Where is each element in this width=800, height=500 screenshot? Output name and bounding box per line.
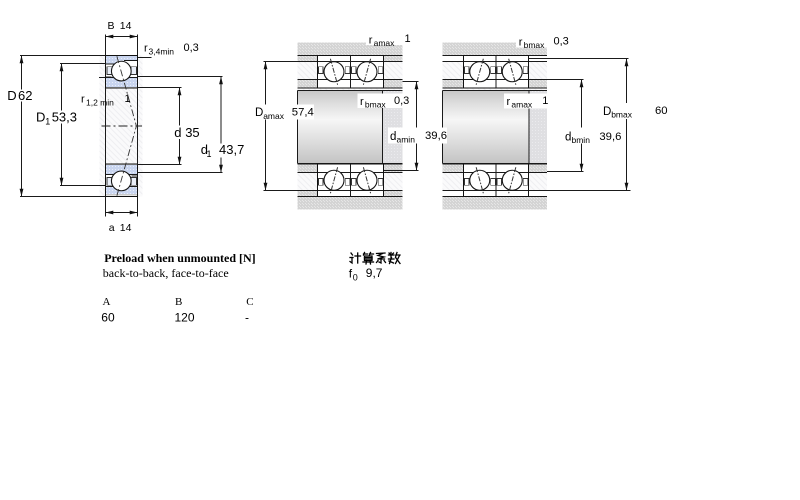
svg-text:r: r	[519, 36, 523, 48]
svg-text:bmin: bmin	[572, 135, 591, 145]
svg-text:amax: amax	[374, 38, 396, 48]
svg-text:1: 1	[207, 149, 212, 159]
svg-text:62: 62	[18, 88, 32, 103]
svg-text:d: d	[174, 125, 181, 140]
svg-text:Preload when unmounted [N]: Preload when unmounted [N]	[104, 251, 255, 265]
svg-text:r: r	[81, 94, 85, 106]
svg-text:1: 1	[45, 116, 50, 126]
svg-text:39,6: 39,6	[599, 131, 621, 143]
svg-text:60: 60	[655, 105, 668, 117]
svg-text:3,4min: 3,4min	[149, 47, 175, 57]
svg-text:amin: amin	[397, 135, 416, 145]
svg-text:35: 35	[185, 125, 199, 140]
svg-text:B: B	[108, 20, 115, 32]
svg-text:amax: amax	[263, 111, 285, 121]
svg-text:1: 1	[125, 93, 131, 105]
svg-text:C: C	[246, 296, 253, 308]
svg-text:back-to-back, face-to-face: back-to-back, face-to-face	[103, 266, 229, 280]
svg-text:D: D	[7, 88, 16, 103]
svg-text:a: a	[109, 222, 115, 234]
svg-text:1: 1	[542, 95, 548, 107]
svg-text:d: d	[565, 131, 571, 143]
svg-text:r: r	[369, 34, 373, 46]
svg-text:r: r	[144, 42, 148, 54]
svg-text:r: r	[507, 96, 511, 108]
svg-text:amax: amax	[511, 100, 533, 110]
svg-text:1,2 min: 1,2 min	[86, 98, 114, 108]
svg-text:D: D	[36, 109, 45, 124]
svg-text:bmax: bmax	[365, 100, 387, 110]
svg-text:0,3: 0,3	[394, 95, 409, 107]
svg-text:0: 0	[353, 272, 358, 282]
svg-text:D: D	[255, 107, 263, 119]
svg-text:1: 1	[405, 33, 411, 45]
svg-text:120: 120	[175, 311, 195, 325]
svg-text:14: 14	[120, 20, 132, 32]
svg-text:-: -	[245, 311, 249, 325]
svg-text:9,7: 9,7	[366, 266, 383, 280]
svg-text:0,3: 0,3	[184, 42, 199, 54]
svg-text:39,6: 39,6	[425, 130, 447, 142]
svg-text:57,4: 57,4	[292, 106, 314, 118]
svg-text:bmax: bmax	[524, 40, 546, 50]
svg-text:d: d	[390, 131, 396, 143]
svg-text:0,3: 0,3	[554, 35, 569, 47]
svg-text:53,3: 53,3	[52, 109, 77, 124]
svg-text:A: A	[103, 296, 111, 308]
svg-text:B: B	[175, 296, 182, 308]
svg-text:43,7: 43,7	[219, 142, 244, 157]
svg-text:r: r	[360, 96, 364, 108]
svg-text:D: D	[603, 106, 611, 118]
svg-text:60: 60	[101, 311, 115, 325]
svg-text:14: 14	[120, 222, 132, 234]
svg-text:bmax: bmax	[611, 110, 633, 120]
